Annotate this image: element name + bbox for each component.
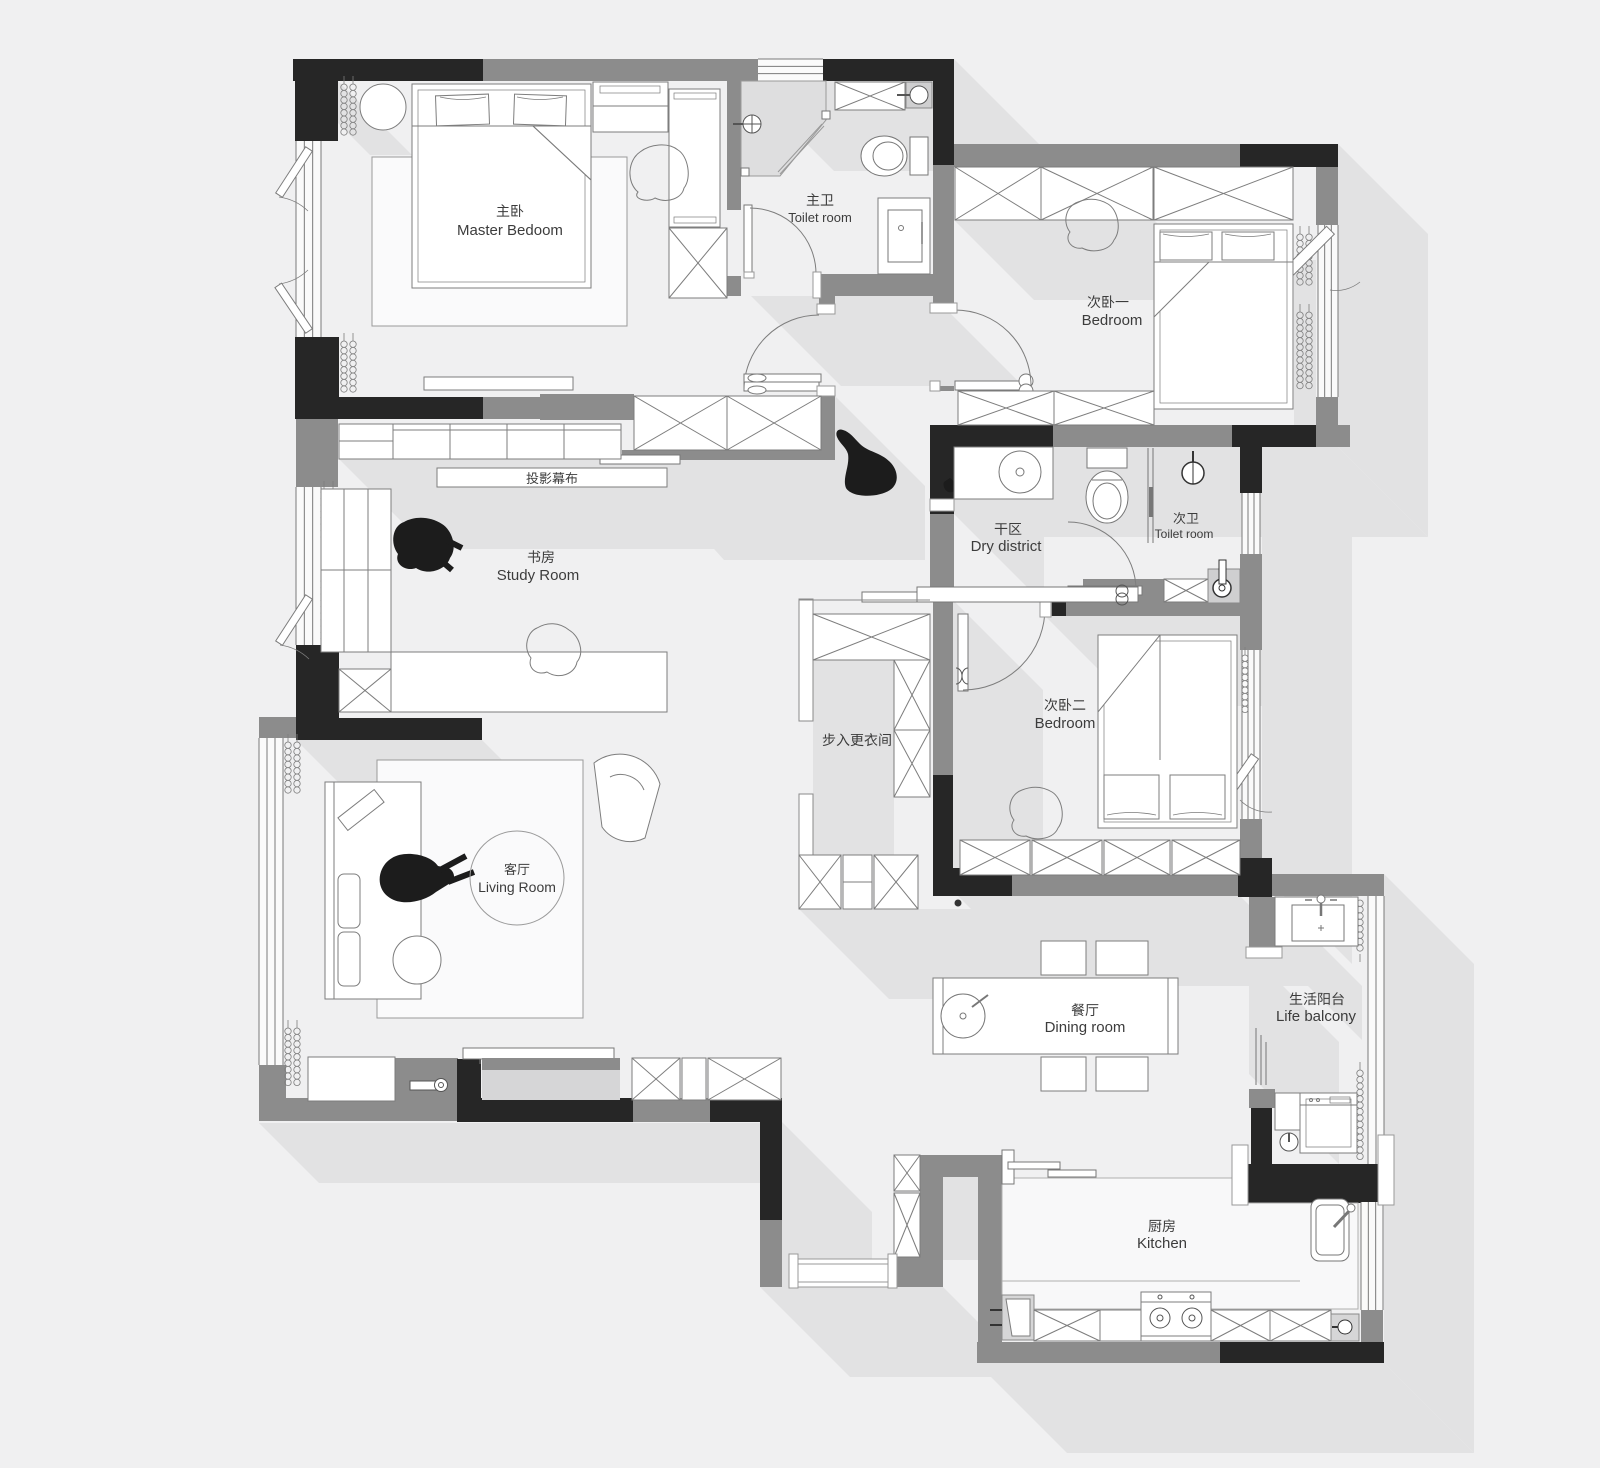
svg-text:Toilet room: Toilet room: [788, 210, 852, 225]
svg-text:Dining room: Dining room: [1045, 1019, 1126, 1036]
svg-text:Living Room: Living Room: [478, 879, 556, 895]
svg-text:Toilet room: Toilet room: [1155, 527, 1214, 541]
svg-text:Master Bedoom: Master Bedoom: [457, 222, 563, 239]
svg-text:Dry district: Dry district: [971, 538, 1043, 555]
svg-text:Kitchen: Kitchen: [1137, 1235, 1187, 1252]
svg-text:Study Room: Study Room: [497, 567, 580, 584]
svg-text:Life balcony: Life balcony: [1276, 1008, 1357, 1025]
svg-text:Bedroom: Bedroom: [1035, 715, 1096, 732]
svg-text:Bedroom: Bedroom: [1082, 312, 1143, 329]
